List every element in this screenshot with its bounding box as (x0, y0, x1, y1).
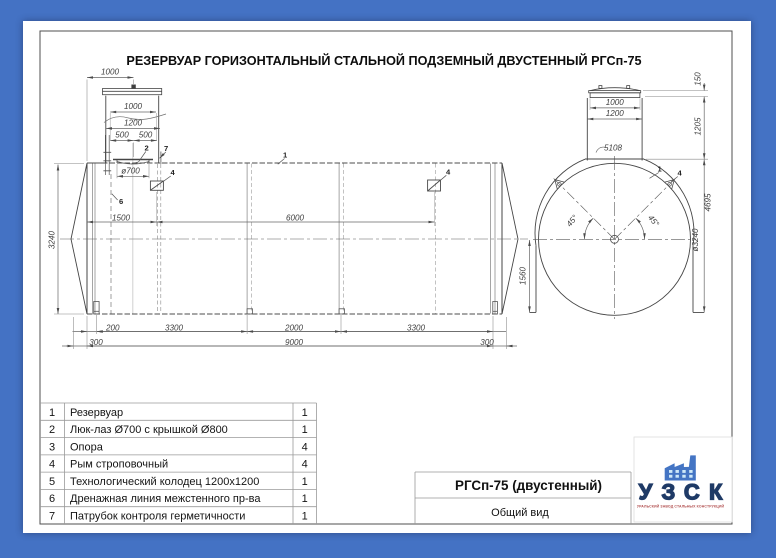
svg-text:1: 1 (302, 424, 308, 436)
svg-text:7: 7 (49, 511, 55, 523)
svg-text:7: 7 (164, 144, 168, 153)
svg-text:4: 4 (678, 169, 683, 178)
svg-text:1200: 1200 (124, 118, 143, 127)
svg-text:Опора: Опора (70, 441, 104, 453)
svg-text:1000: 1000 (124, 102, 143, 111)
svg-text:1200: 1200 (606, 109, 625, 118)
svg-text:1000: 1000 (101, 68, 120, 77)
svg-text:УРАЛЬСКИЙ ЗАВОД СТАЛЬНЫХ КОНСТ: УРАЛЬСКИЙ ЗАВОД СТАЛЬНЫХ КОНСТРУКЦИЙ (637, 505, 725, 509)
svg-text:1205: 1205 (693, 117, 702, 136)
svg-text:1: 1 (302, 476, 308, 488)
svg-text:ø3240: ø3240 (691, 228, 700, 251)
svg-text:45°: 45° (646, 213, 661, 229)
svg-text:РЕЗЕРВУАР ГОРИЗОНТАЛЬНЫЙ СТАЛЬ: РЕЗЕРВУАР ГОРИЗОНТАЛЬНЫЙ СТАЛЬНОЙ ПОДЗЕМ… (126, 53, 641, 68)
svg-text:Общий вид: Общий вид (491, 507, 549, 519)
svg-text:3240: 3240 (48, 231, 57, 250)
svg-text:4695: 4695 (704, 193, 713, 212)
svg-text:3300: 3300 (407, 324, 426, 333)
svg-text:3: 3 (49, 441, 55, 453)
svg-text:4: 4 (302, 441, 308, 453)
svg-text:500: 500 (115, 131, 129, 140)
svg-text:1: 1 (283, 151, 288, 160)
svg-text:2: 2 (145, 144, 149, 153)
svg-text:6: 6 (49, 493, 55, 505)
svg-text:Люк-лаз Ø700 с крышкой Ø800: Люк-лаз Ø700 с крышкой Ø800 (70, 424, 228, 436)
svg-text:4: 4 (302, 459, 308, 471)
svg-text:4: 4 (171, 168, 176, 177)
svg-text:150: 150 (693, 72, 702, 86)
svg-text:2000: 2000 (284, 324, 304, 333)
svg-text:500: 500 (139, 131, 153, 140)
svg-text:Технологический колодец 1200х1: Технологический колодец 1200х1200 (70, 476, 259, 488)
svg-text:1560: 1560 (519, 267, 528, 286)
svg-text:300: 300 (89, 338, 103, 347)
svg-text:300: 300 (480, 338, 494, 347)
svg-text:6: 6 (119, 197, 123, 206)
svg-text:1500: 1500 (112, 213, 131, 222)
svg-text:2: 2 (49, 424, 55, 436)
svg-text:1: 1 (302, 407, 308, 419)
svg-text:3300: 3300 (165, 324, 184, 333)
svg-text:Рым строповочный: Рым строповочный (70, 459, 168, 471)
svg-text:Дренажная линия межстенного пр: Дренажная линия межстенного пр-ва (70, 493, 261, 505)
svg-text:5108: 5108 (604, 144, 623, 153)
svg-text:1: 1 (302, 511, 308, 523)
svg-text:Патрубок контроля герметичност: Патрубок контроля герметичности (70, 511, 245, 523)
svg-text:1: 1 (49, 407, 55, 419)
svg-text:Резервуар: Резервуар (70, 407, 123, 419)
svg-text:6000: 6000 (286, 213, 305, 222)
svg-text:45°: 45° (565, 213, 580, 229)
svg-text:ø700: ø700 (121, 166, 140, 175)
svg-text:5: 5 (49, 476, 55, 488)
svg-text:1000: 1000 (606, 98, 625, 107)
svg-text:УЗСК: УЗСК (639, 479, 732, 504)
svg-text:4: 4 (49, 459, 55, 471)
svg-text:200: 200 (105, 324, 120, 333)
svg-text:РГСп-75 (двустенный): РГСп-75 (двустенный) (455, 478, 602, 493)
svg-text:9000: 9000 (285, 338, 304, 347)
svg-text:1: 1 (302, 493, 308, 505)
svg-text:4: 4 (446, 167, 451, 176)
